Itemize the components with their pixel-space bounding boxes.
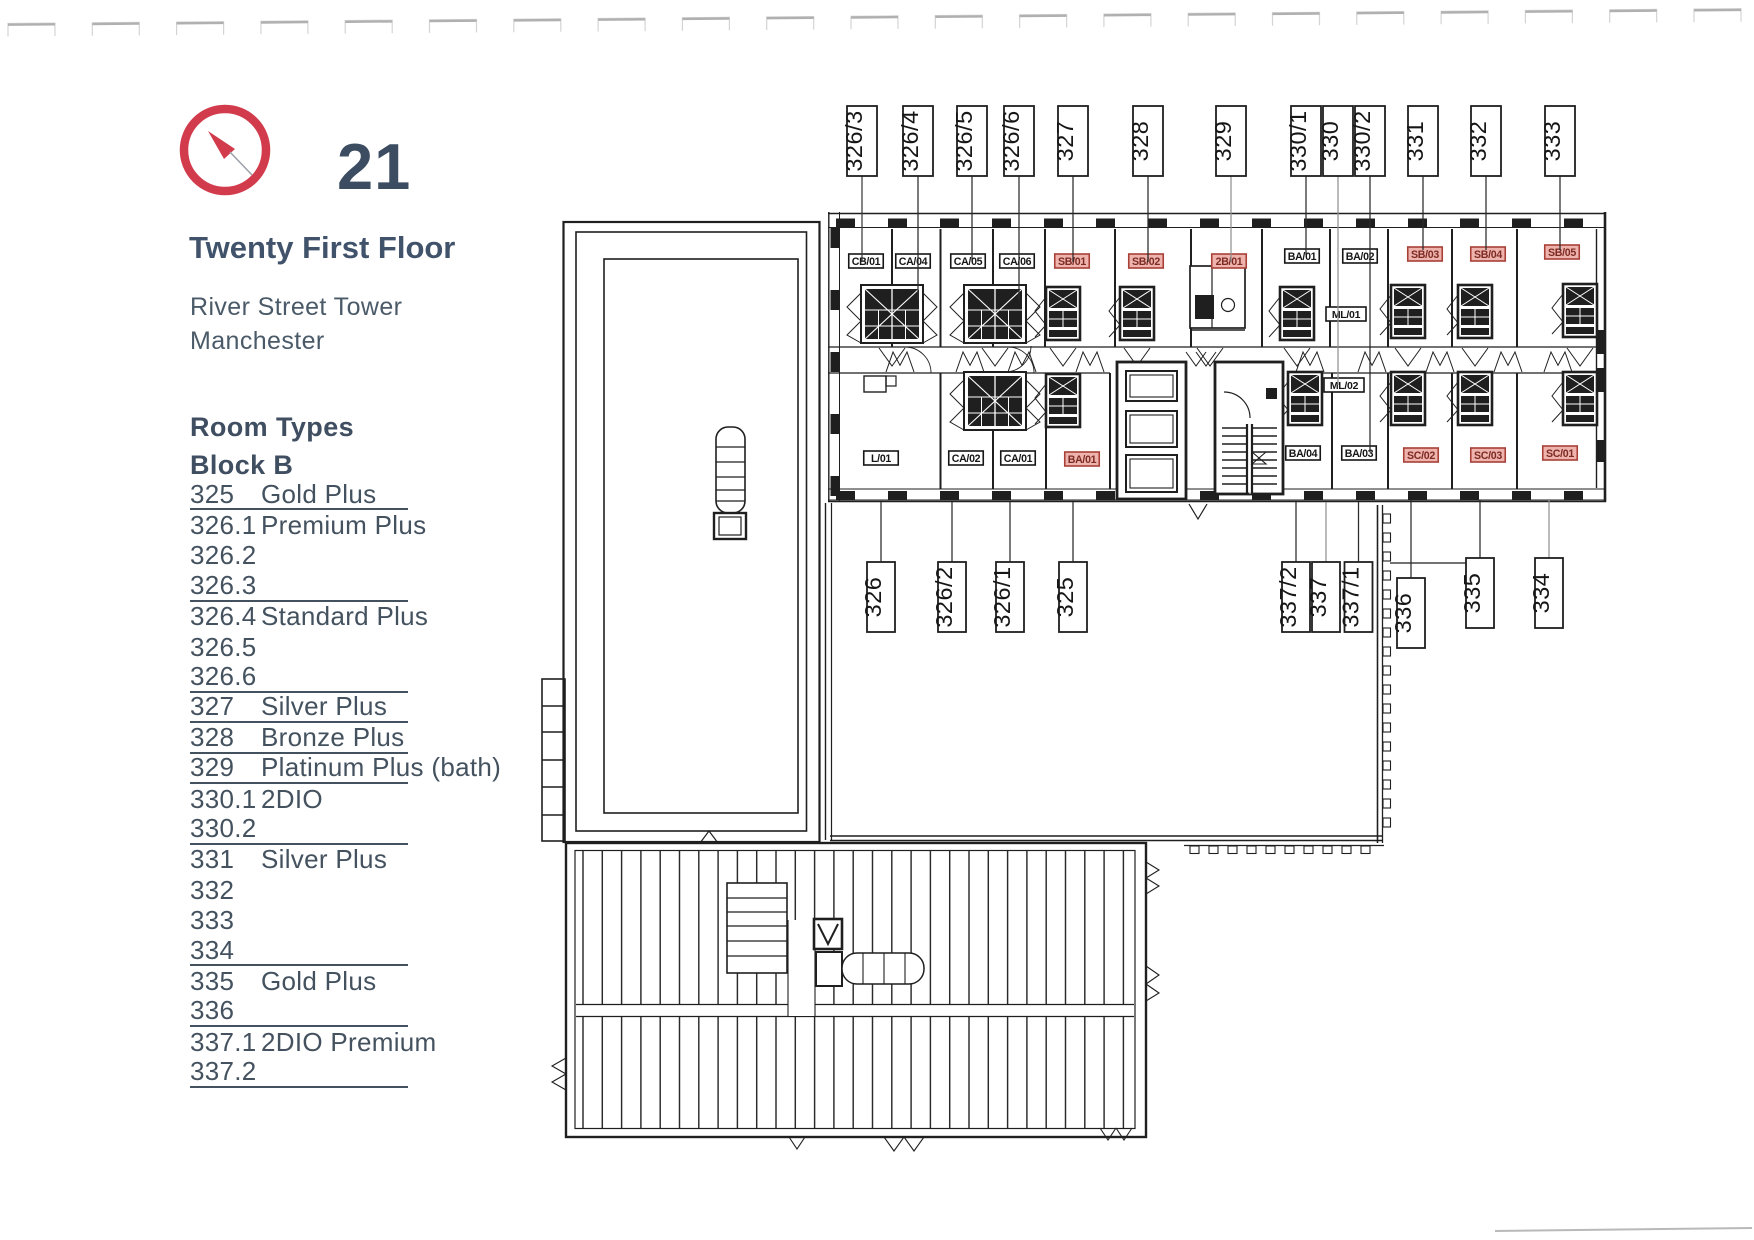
svg-text:SB/05: SB/05 xyxy=(1548,247,1576,259)
svg-text:333: 333 xyxy=(1539,121,1565,162)
svg-text:334: 334 xyxy=(1528,573,1554,614)
svg-text:330/1: 330/1 xyxy=(1285,110,1311,171)
svg-text:326/3: 326/3 xyxy=(841,110,867,171)
svg-text:BA/01: BA/01 xyxy=(1288,251,1317,263)
svg-text:337/2: 337/2 xyxy=(1275,566,1301,627)
svg-text:BA/03: BA/03 xyxy=(1345,448,1374,460)
svg-text:SB/04: SB/04 xyxy=(1474,249,1502,261)
svg-text:326/2: 326/2 xyxy=(931,566,957,627)
svg-text:337: 337 xyxy=(1305,577,1331,618)
svg-text:CA/01: CA/01 xyxy=(1004,453,1033,465)
svg-text:326/6: 326/6 xyxy=(998,110,1024,171)
svg-text:326/1: 326/1 xyxy=(989,566,1015,627)
svg-text:CA/02: CA/02 xyxy=(952,453,981,465)
svg-text:CA/06: CA/06 xyxy=(1003,256,1032,268)
svg-text:ML/02: ML/02 xyxy=(1330,380,1359,392)
svg-text:331: 331 xyxy=(1402,121,1428,162)
svg-text:330: 330 xyxy=(1317,121,1343,162)
svg-text:326/5: 326/5 xyxy=(951,110,977,171)
svg-text:SC/03: SC/03 xyxy=(1474,450,1502,462)
svg-text:335: 335 xyxy=(1459,573,1485,614)
svg-text:326: 326 xyxy=(860,577,886,618)
svg-text:336: 336 xyxy=(1390,593,1416,634)
svg-text:327: 327 xyxy=(1052,121,1078,162)
svg-text:BA/04: BA/04 xyxy=(1289,448,1318,460)
svg-text:SB/02: SB/02 xyxy=(1132,256,1160,268)
svg-text:SB/01: SB/01 xyxy=(1058,256,1086,268)
svg-text:329: 329 xyxy=(1210,121,1236,162)
svg-text:328: 328 xyxy=(1127,121,1153,162)
svg-text:BA/01: BA/01 xyxy=(1068,454,1097,466)
svg-text:330/2: 330/2 xyxy=(1349,110,1375,171)
svg-text:SC/02: SC/02 xyxy=(1407,450,1435,462)
svg-text:CA/05: CA/05 xyxy=(954,256,983,268)
svg-text:ML/01: ML/01 xyxy=(1332,309,1361,321)
svg-text:2B/01: 2B/01 xyxy=(1216,256,1243,268)
svg-text:CA/04: CA/04 xyxy=(899,256,928,268)
svg-text:337/1: 337/1 xyxy=(1338,566,1364,627)
svg-text:SB/03: SB/03 xyxy=(1411,249,1439,261)
svg-text:325: 325 xyxy=(1052,577,1078,618)
svg-text:L/01: L/01 xyxy=(871,453,891,465)
svg-text:CB/01: CB/01 xyxy=(852,256,881,268)
svg-text:332: 332 xyxy=(1465,121,1491,162)
svg-text:326/4: 326/4 xyxy=(897,110,923,171)
svg-text:SC/01: SC/01 xyxy=(1546,448,1574,460)
